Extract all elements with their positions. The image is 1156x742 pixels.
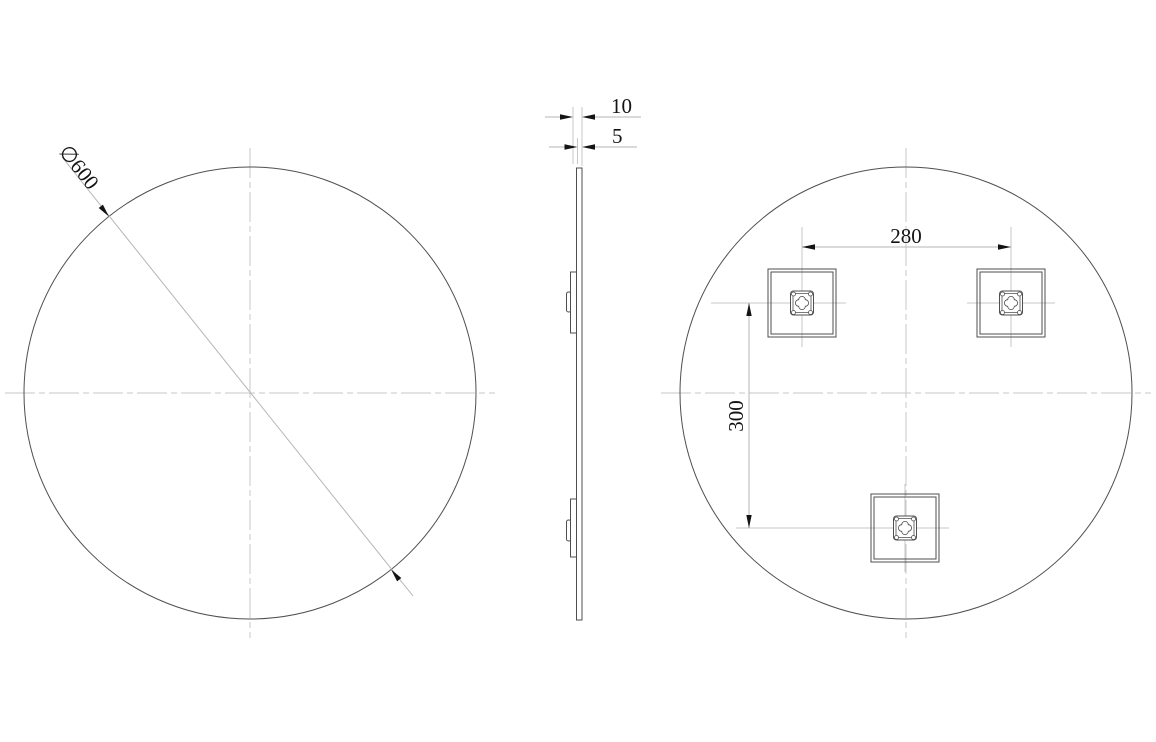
dimension-arrow xyxy=(582,114,595,119)
screw xyxy=(809,292,813,296)
side-bracket-upper xyxy=(571,272,577,333)
screw xyxy=(1018,292,1022,296)
back-bracket-top-right xyxy=(967,259,1055,347)
dimension-arrow xyxy=(560,114,573,119)
screw xyxy=(809,311,813,315)
front-diameter-dim-text: ∅600 xyxy=(54,140,104,194)
dimension-arrow xyxy=(802,244,815,249)
screw xyxy=(895,517,899,521)
side-view: 10 5 xyxy=(545,94,641,620)
dimension-arrow xyxy=(998,244,1011,249)
side-mirror-profile xyxy=(577,168,583,620)
back-view: 280 300 xyxy=(661,148,1151,638)
back-spacing-vertical-dim-text: 300 xyxy=(724,400,748,432)
side-bracket-lower xyxy=(571,499,577,557)
screw xyxy=(895,536,899,540)
screw xyxy=(1018,311,1022,315)
mirror-technical-drawing: ∅600 10 5 280 xyxy=(0,0,1156,742)
side-depth-dim-text: 10 xyxy=(611,94,632,118)
side-glass-thickness-dim-text: 5 xyxy=(612,124,623,148)
front-view: ∅600 xyxy=(5,140,495,638)
front-diameter-dim-line xyxy=(62,157,413,596)
screw xyxy=(792,292,796,296)
dimension-arrow xyxy=(582,144,595,149)
screw xyxy=(912,536,916,540)
screw xyxy=(1001,292,1005,296)
screw xyxy=(912,517,916,521)
front-diameter-arrow-upper xyxy=(99,205,109,217)
dimension-arrow xyxy=(565,144,578,149)
screw xyxy=(792,311,796,315)
dimension-arrow xyxy=(746,515,751,528)
back-bracket-top-left xyxy=(758,259,846,347)
dimension-arrow xyxy=(746,303,751,316)
back-spacing-horizontal-dim-text: 280 xyxy=(890,224,922,248)
screw xyxy=(1001,311,1005,315)
back-bracket-bottom xyxy=(861,484,949,572)
